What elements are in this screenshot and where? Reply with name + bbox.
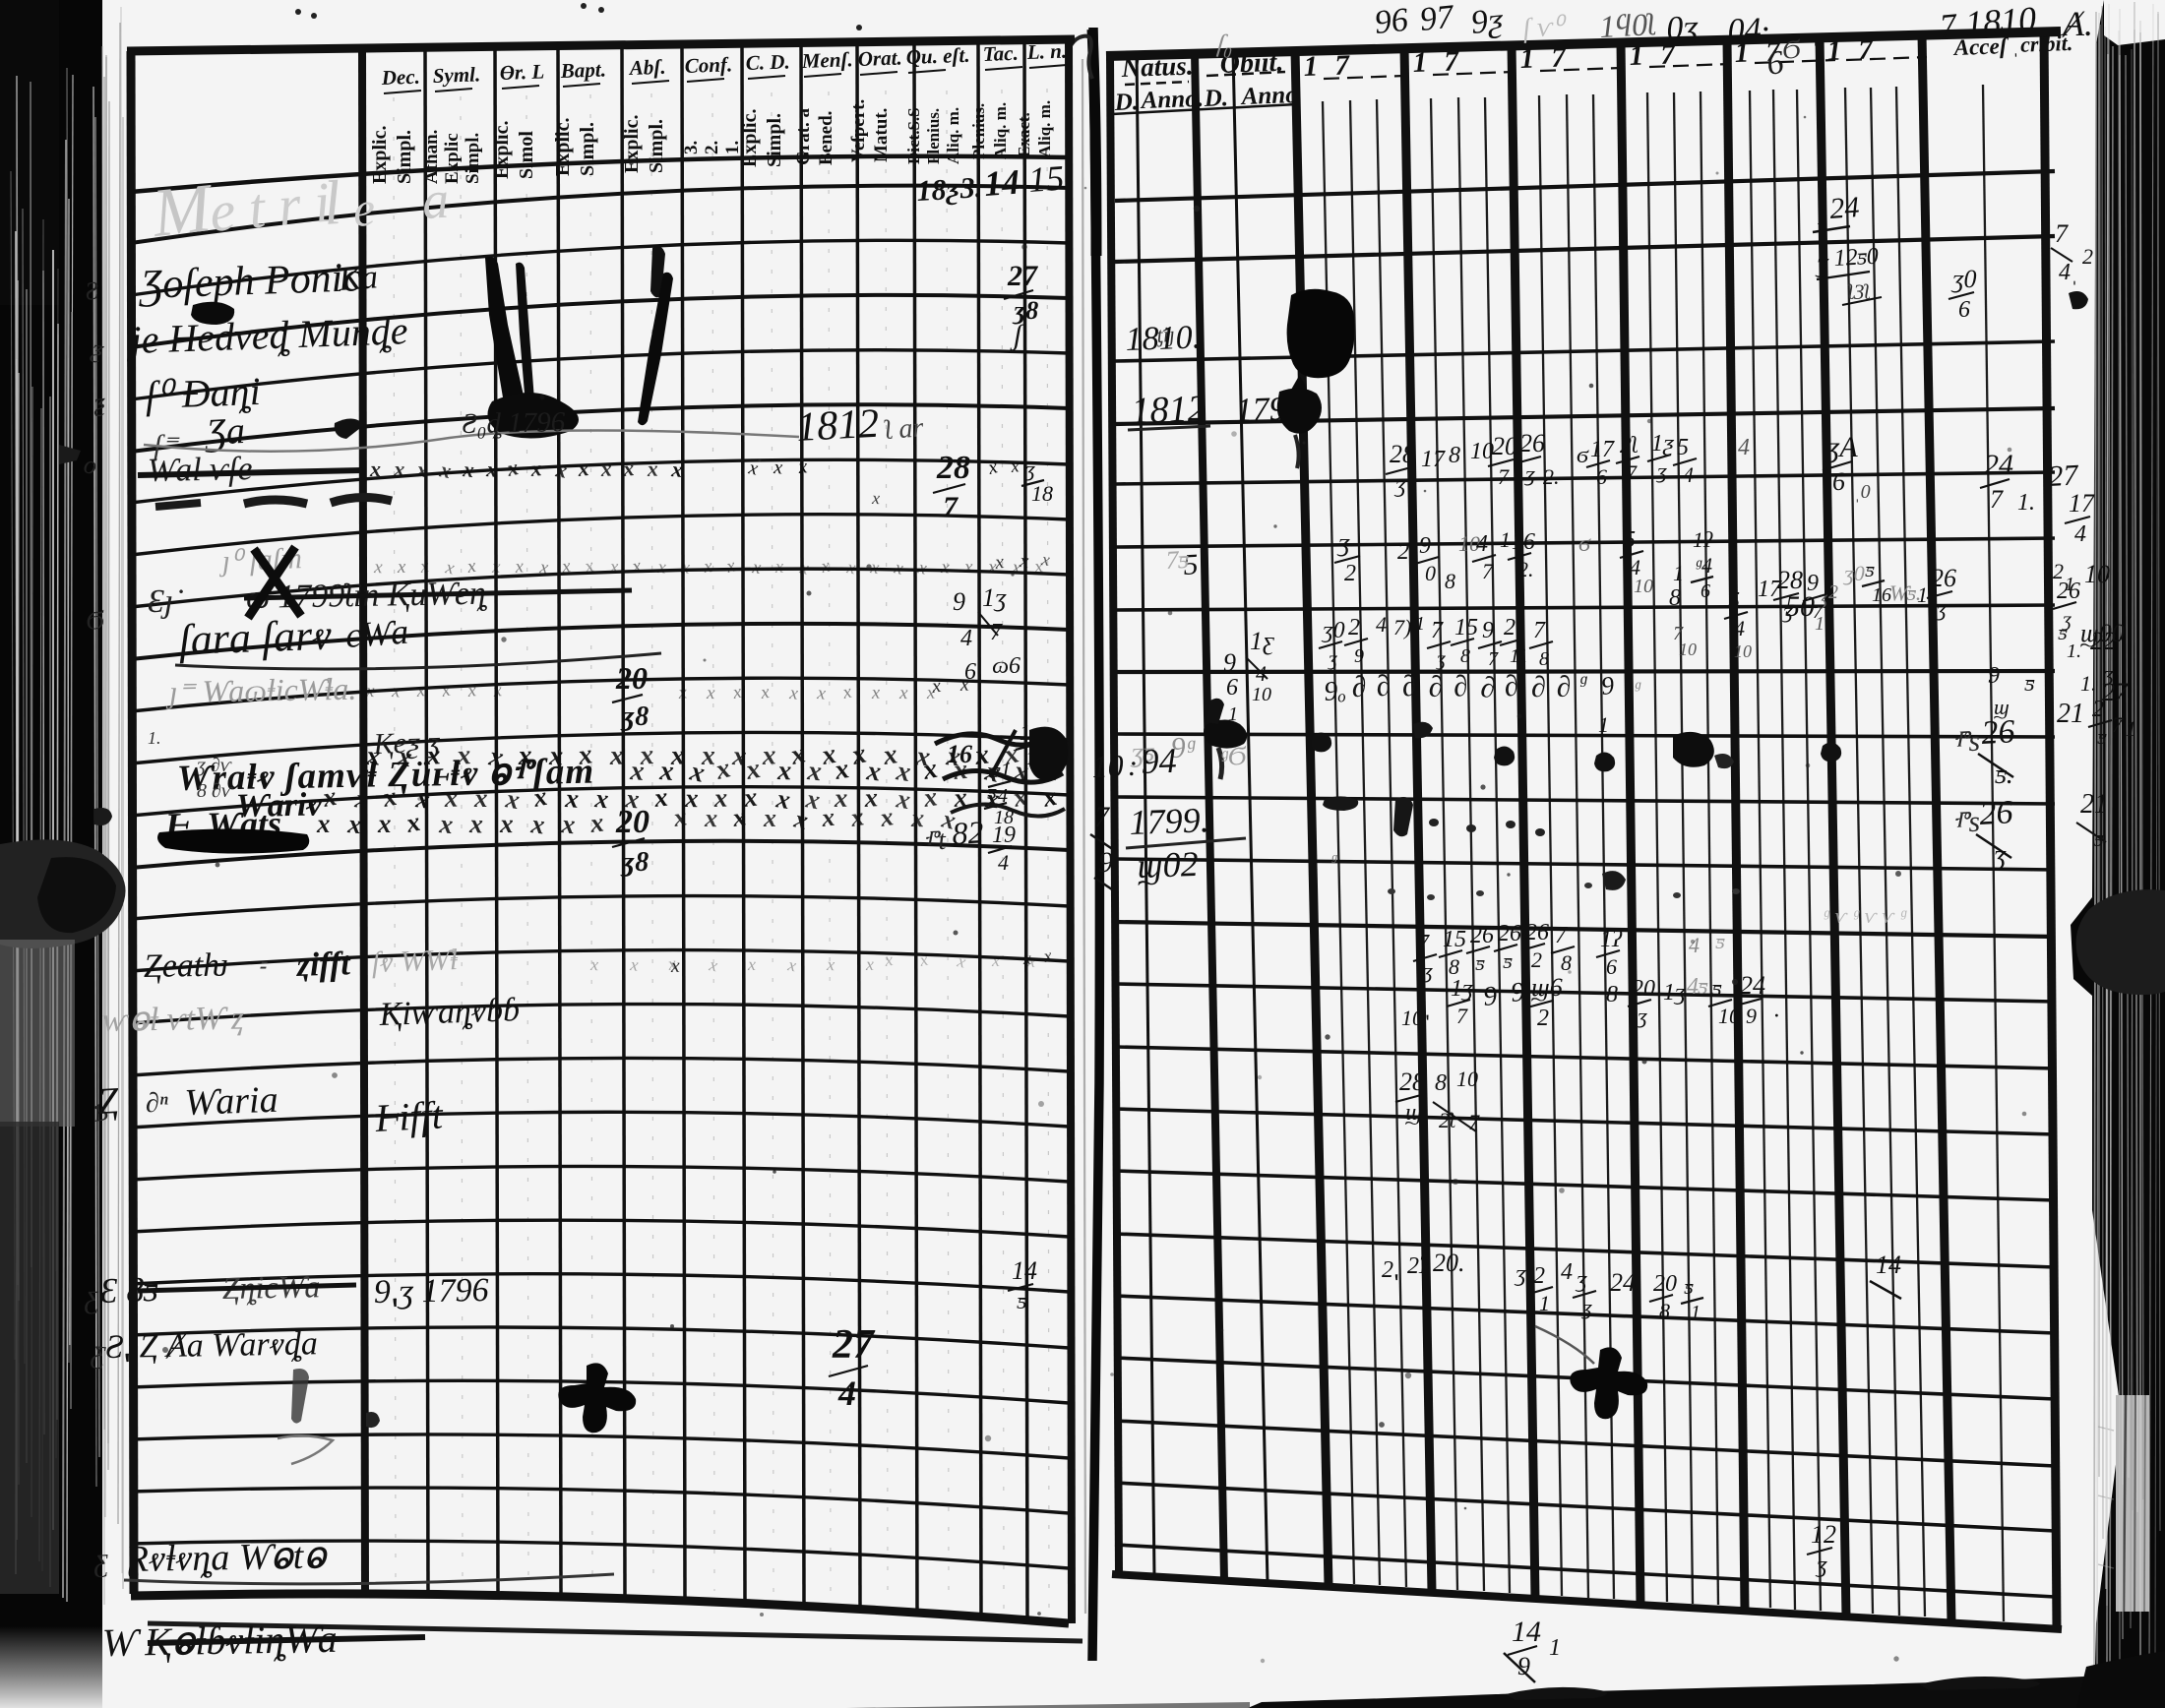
svg-text:7: 7 [990, 620, 1003, 645]
svg-text:1: 1 [1539, 1291, 1550, 1315]
svg-text:7ƽ: 7ƽ [1165, 545, 1190, 575]
svg-text:7: 7 [1488, 648, 1499, 670]
svg-text:Ⱬeatƕ: Ⱬeatƕ [143, 947, 228, 985]
svg-text:ƽ: ƽ [1711, 976, 1722, 1002]
svg-text:x: x [369, 457, 381, 481]
svg-text:ʒ0: ʒ0 [1321, 618, 1345, 643]
svg-text:x: x [468, 809, 484, 839]
svg-text:2: 2 [1828, 581, 1838, 603]
svg-text:1810.: 1810. [1125, 319, 1202, 358]
svg-text:10: 10 [1679, 640, 1697, 659]
svg-text:6: 6 [1958, 297, 1970, 323]
svg-text:16: 16 [1872, 584, 1891, 606]
svg-text:x: x [963, 557, 973, 578]
svg-text:2: 2 [2082, 244, 2093, 269]
svg-text:1.: 1. [2080, 671, 2097, 696]
svg-text:x: x [345, 809, 362, 839]
svg-text:82: 82 [951, 814, 984, 851]
svg-text:14: 14 [983, 162, 1021, 204]
svg-text:ƽ: ƽ [1865, 557, 1875, 581]
svg-text:x: x [608, 741, 624, 771]
svg-text:1: 1 [2126, 716, 2136, 741]
svg-text:4: 4 [1689, 933, 1700, 957]
svg-text:ᶢ ⱱ ᶢ ⱱ ⱱ ᶢ: ᶢ ⱱ ᶢ ⱱ ⱱ ᶢ [1823, 903, 1907, 928]
svg-text:26: 26 [2057, 579, 2080, 604]
svg-text:Simpl.: Simpl. [394, 130, 415, 184]
svg-text:12: 12 [1811, 1520, 1836, 1549]
svg-text:ƽ: ƽ [2024, 671, 2035, 697]
svg-text:ᶢ: ᶢ [1634, 675, 1641, 700]
svg-text:7: 7 [1533, 618, 1546, 643]
svg-text:9: 9 [1419, 533, 1431, 559]
svg-text:4ƽ: 4ƽ [1687, 974, 1708, 1000]
svg-text:16: 16 [947, 740, 972, 768]
svg-text:8: 8 [1669, 585, 1681, 611]
svg-text:2.: 2. [1517, 557, 1534, 581]
svg-text:Ʒoſeph Ponic: Ʒoſeph Ponic [138, 255, 362, 308]
svg-text:ʒ: ʒ [1393, 472, 1406, 498]
svg-text:4: 4 [1561, 1259, 1573, 1285]
svg-text:17: 17 [2069, 489, 2095, 518]
svg-text:9: 9 [1988, 663, 2000, 689]
svg-text:Simpl.: Simpl. [463, 133, 483, 184]
svg-text:ƽ: ƽ [987, 779, 997, 804]
svg-text:1ϥ0ʅ: 1ϥ0ʅ [1598, 6, 1655, 44]
svg-text:ʒ: ʒ [1523, 461, 1535, 486]
svg-text:Ƨ₀ȡ 1796: Ƨ₀ȡ 1796 [463, 406, 566, 440]
svg-text:2.: 2. [1543, 464, 1560, 489]
svg-text:ϣ: ϣ [1405, 1100, 1422, 1126]
svg-text:x: x [646, 457, 658, 481]
svg-text:Matut.: Matut. [871, 108, 892, 162]
svg-text:D.: D. [1113, 89, 1139, 116]
svg-text:ϭ: ϭ [1577, 443, 1589, 468]
svg-text:0: 0 [1425, 561, 1436, 585]
svg-text:21: 21 [2057, 699, 2084, 729]
svg-text:ʒ: ʒ [1815, 248, 1829, 278]
svg-text:Anno: Anno [1239, 82, 1298, 110]
svg-text:1.: 1. [2017, 490, 2035, 516]
svg-text:D.: D. [1203, 85, 1228, 112]
svg-text:1ʒ: 1ʒ [1451, 976, 1473, 1002]
svg-text:10: 10 [1091, 748, 1124, 784]
svg-text:4: 4 [1476, 531, 1488, 557]
svg-text:6: 6 [1832, 467, 1845, 496]
svg-text:Simpl.: Simpl. [764, 113, 785, 167]
svg-text:8: 8 [1445, 569, 1455, 593]
svg-text:4: 4 [1256, 661, 1267, 686]
svg-text:ϭ: ϭ [1578, 531, 1591, 557]
svg-text:9: 9 [1510, 977, 1526, 1008]
svg-text:28: 28 [1390, 440, 1415, 468]
svg-text:x: x [621, 456, 635, 481]
svg-text:Menſ.: Menſ. [800, 47, 853, 73]
svg-text:ʒ: ʒ [1421, 958, 1433, 983]
svg-text:ʒ: ʒ [1815, 1553, 1827, 1578]
svg-text:20: 20 [1653, 1271, 1677, 1297]
svg-text:10: 10 [1470, 439, 1494, 464]
svg-text:x: x [491, 557, 501, 578]
svg-text:ſ ⱱ⁰: ſ ⱱ⁰ [1521, 11, 1568, 44]
svg-text:1: 1 [1549, 1635, 1561, 1661]
svg-text:x: x [684, 783, 699, 813]
svg-text:x: x [437, 809, 454, 839]
svg-text:Explic.: Explic. [491, 121, 513, 179]
svg-text:20: 20 [1632, 976, 1655, 1002]
svg-text:ƽ: ƽ [1715, 929, 1725, 953]
svg-text:ʒA: ʒA [1825, 431, 1858, 463]
svg-text:Grat. a: Grat. a [793, 107, 814, 165]
svg-text:Explic.: Explic. [369, 126, 391, 184]
svg-text:97: 97 [1418, 0, 1457, 38]
svg-text:ⱂs: ⱂs [1951, 725, 1981, 759]
svg-text:ʒ: ʒ [1636, 1004, 1647, 1028]
svg-text:27: 27 [1007, 260, 1038, 292]
svg-text:5: 5 [1677, 435, 1689, 460]
svg-text:Abſ.: Abſ. [627, 55, 666, 80]
svg-text:10: 10 [1718, 1004, 1740, 1028]
svg-text:1 7: 1 7 [1303, 49, 1354, 83]
svg-text:20.: 20. [1433, 1249, 1465, 1277]
svg-text:Dict.S.S: Dict.S.S [904, 107, 923, 164]
svg-text:7: 7 [1990, 485, 2004, 514]
svg-text:Ka: Ka [337, 259, 379, 298]
svg-text:18: 18 [916, 173, 948, 208]
svg-text:Ʒa: Ʒa [203, 410, 246, 454]
svg-text:x: x [365, 681, 375, 701]
svg-text:Plenius.: Plenius. [924, 108, 943, 164]
svg-text:x: x [940, 557, 951, 579]
svg-text:2: 2 [1533, 1263, 1545, 1289]
svg-text:a: a [420, 170, 450, 230]
svg-text:7: 7 [1482, 559, 1494, 583]
svg-text:1: 1 [1673, 561, 1684, 585]
svg-text:L. n.: L. n. [1025, 39, 1067, 64]
svg-text:ƺ3.: ƺ3. [945, 171, 983, 206]
svg-text:26: 26 [1498, 921, 1521, 946]
svg-text:1: 1 [1691, 1302, 1701, 1323]
svg-text:x: x [1019, 550, 1029, 573]
svg-text:Aliq. m.: Aliq. m. [1035, 100, 1054, 157]
svg-text:9⹁ʒ 1796: 9⹁ʒ 1796 [373, 1272, 488, 1311]
svg-text:5: 5 [1624, 527, 1636, 553]
svg-text:1ʔ: 1ʔ [1600, 927, 1623, 952]
svg-text:28: 28 [1399, 1067, 1425, 1096]
svg-text:6: 6 [1226, 675, 1238, 701]
svg-text:·: · [1773, 1004, 1779, 1029]
svg-text:Ⱶifft: Ⱶifft [373, 1092, 445, 1140]
svg-text:17: 17 [1590, 437, 1615, 462]
svg-text:ƽ: ƽ [1503, 948, 1513, 973]
svg-text:2: 2 [1348, 615, 1360, 640]
svg-text:Simol: Simol [516, 131, 537, 179]
svg-text:ƽ: ƽ [1017, 1289, 1027, 1314]
svg-text:8: 8 [1606, 982, 1618, 1007]
svg-text:Syml.: Syml. [432, 62, 480, 88]
svg-text:4: 4 [1738, 435, 1750, 460]
svg-text:x: x [377, 809, 392, 838]
svg-text:24: 24 [1610, 1268, 1636, 1297]
svg-text:7: 7 [1498, 464, 1510, 489]
svg-text:⹁: ⹁ [1634, 1267, 1639, 1292]
svg-text:ʒ: ʒ [1655, 458, 1667, 483]
svg-text:26: 26 [1519, 429, 1545, 457]
svg-text:8: 8 [1435, 1070, 1447, 1096]
svg-text:Ⱥ.: Ⱥ. [2061, 4, 2093, 43]
svg-text:Tac.: Tac. [982, 41, 1019, 66]
svg-text:1: 1 [1817, 202, 1829, 230]
svg-text:ϣ6: ϣ6 [1531, 973, 1563, 1002]
svg-text:∂: ∂ [1480, 671, 1497, 704]
svg-text:ȷ⁼ ⱲaɷⱡicⱲⱡa.: ȷ⁼ ⱲaɷⱡicⱲⱡa. [164, 671, 356, 709]
svg-text:6: 6 [1606, 954, 1617, 979]
svg-text:12ƽ0: 12ƽ0 [1833, 244, 1880, 272]
svg-text:x: x [863, 782, 879, 813]
svg-text:ƽ: ƽ [1684, 1274, 1694, 1299]
svg-text:ᶢ4: ᶢ4 [1695, 553, 1712, 578]
svg-text:∂: ∂ [1531, 671, 1546, 703]
svg-text:Plenius.: Plenius. [969, 103, 988, 159]
svg-text:x: x [316, 809, 331, 838]
svg-text:0ʒ: 0ʒ [1665, 9, 1700, 47]
svg-text:x: x [704, 804, 718, 832]
svg-text:cⱲa: cⱲa [344, 612, 410, 655]
svg-text:1799.: 1799. [1129, 800, 1209, 842]
svg-text:x: x [761, 740, 777, 771]
svg-text:2: 2 [1537, 1006, 1549, 1031]
svg-text:20: 20 [615, 804, 649, 840]
svg-text:2: 2 [1531, 947, 1542, 972]
svg-text:1.: 1. [2067, 640, 2081, 662]
svg-text:9: 9 [1223, 648, 1236, 677]
svg-text:x: x [773, 557, 784, 578]
svg-text:21: 21 [2080, 789, 2108, 820]
svg-text:27: 27 [2048, 458, 2081, 493]
svg-text:Ɵr. L: Ɵr. L [499, 59, 544, 85]
svg-text:2: 2 [1344, 561, 1356, 586]
svg-text:x: x [670, 955, 681, 977]
svg-text:8 ∂ⱱ: 8 ∂ⱱ [197, 780, 233, 802]
svg-text:x: x [656, 557, 667, 579]
svg-text:26: 26 [1931, 564, 1956, 592]
svg-text:24: 24 [1828, 191, 1860, 225]
svg-text:ƽ.: ƽ. [1995, 760, 2013, 790]
svg-text:1: 1 [1415, 613, 1425, 635]
svg-text:14: 14 [1876, 1250, 1901, 1279]
svg-text:2.: 2. [702, 141, 722, 154]
svg-text:ᶢ: ᶢ [1330, 849, 1337, 871]
svg-text:ʅ ar: ʅ ar [883, 412, 924, 446]
svg-text:1ʒ: 1ʒ [982, 583, 1007, 612]
svg-text:Qu. eſt.: Qu. eſt. [905, 43, 970, 69]
svg-text:x: x [773, 457, 783, 479]
svg-text::: : [1128, 750, 1138, 782]
svg-text:7: 7 [1417, 931, 1430, 956]
svg-text:∂: ∂ [1556, 670, 1572, 703]
svg-text:7: 7 [1456, 1004, 1468, 1028]
svg-text:ʒ: ʒ [1935, 596, 1947, 621]
svg-text:9: 9 [1098, 846, 1113, 879]
svg-text:15: 15 [1443, 927, 1466, 952]
svg-text:x: x [670, 457, 684, 482]
svg-text:04·: 04· [1727, 12, 1770, 49]
svg-text:x: x [414, 457, 428, 482]
svg-text:28: 28 [1777, 566, 1803, 594]
svg-text:x: x [870, 683, 881, 703]
svg-text:24: 24 [1984, 449, 2013, 481]
svg-text:10: 10 [1734, 641, 1752, 661]
svg-text:8: 8 [1449, 443, 1460, 468]
svg-text:x: x [805, 756, 823, 787]
svg-text:2: 2 [1504, 615, 1515, 640]
svg-text:9: 9 [1482, 981, 1499, 1012]
svg-text:Veſpert.: Veſpert. [848, 99, 869, 162]
svg-text:x: x [528, 456, 542, 481]
svg-text:4: 4 [998, 850, 1009, 875]
svg-text:x: x [589, 954, 599, 974]
svg-text:2: 2 [2092, 697, 2104, 722]
svg-text:ˌ0: ˌ0 [1854, 481, 1871, 503]
svg-text:4: 4 [1376, 612, 1387, 637]
svg-text:ʒ: ʒ [1992, 840, 2007, 871]
svg-text:1: 1 [1309, 850, 1320, 875]
svg-text:Exact.: Exact. [1015, 112, 1033, 157]
svg-text:9: 9 [1354, 645, 1364, 667]
svg-text:x: x [865, 954, 874, 974]
svg-text:⹁: ⹁ [1425, 1001, 1430, 1022]
svg-text:7: 7 [2055, 219, 2069, 248]
svg-text:x: x [559, 809, 576, 839]
svg-text:ᶢϬ: ᶢϬ [1219, 742, 1248, 771]
svg-text:ſ₀: ſ₀ [1215, 29, 1234, 59]
svg-text:5: 5 [1728, 588, 1740, 614]
svg-text:x: x [898, 683, 908, 703]
svg-text:Explic.: Explic. [552, 118, 574, 176]
svg-text:7: 7 [943, 491, 959, 523]
svg-text:ʒ: ʒ [1575, 1267, 1587, 1293]
svg-text:4: 4 [1734, 616, 1745, 640]
svg-text:7: 7 [1094, 801, 1111, 833]
svg-text:19: 19 [992, 823, 1016, 848]
svg-text:2⹁: 2⹁ [1382, 1257, 1399, 1283]
svg-text:9: 9 [1746, 1004, 1757, 1028]
svg-text:24: 24 [1740, 971, 1765, 1000]
svg-text:∂ⁿ: ∂ⁿ [146, 1088, 168, 1119]
svg-text:ʒ0: ʒ0 [1842, 561, 1865, 585]
svg-text:Explic.: Explic. [739, 109, 761, 167]
svg-text:x: x [834, 783, 848, 813]
svg-text:3.: 3. [681, 141, 702, 154]
svg-text:ᶢ: ᶢ [1578, 668, 1587, 697]
svg-text:e: e [351, 181, 377, 237]
svg-text:ⱂt: ⱂt [922, 825, 948, 857]
svg-text:x: x [499, 809, 514, 838]
svg-text:10: 10 [1401, 1006, 1423, 1030]
svg-text:Ⱬ: Ⱬ [96, 1080, 120, 1123]
svg-text:7: 7 [1431, 618, 1444, 643]
svg-text:Bened.: Bened. [816, 111, 836, 165]
svg-text:x: x [776, 756, 792, 786]
svg-text:x: x [373, 557, 384, 578]
svg-text:26: 26 [1980, 713, 2015, 752]
svg-text:Simpl.: Simpl. [577, 122, 598, 176]
svg-text:Aliq. m.: Aliq. m. [944, 107, 962, 164]
svg-text:ʒ8: ʒ8 [620, 847, 649, 878]
svg-text:10: 10 [2084, 560, 2110, 588]
svg-text:8: 8 [1460, 645, 1470, 667]
svg-text:x: x [1021, 948, 1031, 968]
svg-text:4: 4 [960, 626, 972, 651]
svg-text:∂: ∂ [1351, 671, 1367, 703]
svg-text:1812: 1812 [795, 401, 880, 451]
svg-text:27: 27 [2102, 678, 2129, 706]
svg-text:1ƺ: 1ƺ [1651, 431, 1675, 457]
svg-text:ʒ: ʒ [1327, 648, 1337, 670]
svg-text:1 7: 1 7 [1826, 33, 1878, 67]
svg-text:x: x [609, 557, 619, 578]
svg-text:Dec.: Dec. [380, 65, 420, 90]
svg-text:Simpl.: Simpl. [646, 119, 667, 173]
svg-text:20: 20 [615, 660, 648, 696]
svg-text:Bapt.: Bapt. [559, 57, 606, 83]
svg-text:8: 8 [1539, 648, 1549, 670]
svg-text:ⱬifft: ⱬifft [295, 945, 352, 984]
svg-text:ʒ0: ʒ0 [1950, 265, 1977, 293]
svg-text:ʒ: ʒ [1580, 1295, 1592, 1319]
svg-text:x: x [599, 457, 612, 482]
svg-text:ɷ6: ɷ6 [992, 653, 1021, 679]
svg-text:7: 7 [2112, 712, 2124, 737]
svg-text:28: 28 [936, 450, 970, 486]
svg-text:6: 6 [1701, 580, 1710, 602]
svg-text:x: x [391, 681, 402, 702]
svg-text:16: 16 [1512, 529, 1535, 555]
svg-text:17: 17 [1421, 447, 1446, 472]
svg-text:ⱳⱺⱡ ⱱtⱲ ⱬ: ⱳⱺⱡ ⱱtⱲ ⱬ [101, 1000, 244, 1039]
svg-text:94: 94 [1141, 741, 1177, 781]
svg-text:ˌ: ˌ [1811, 14, 1821, 46]
svg-text:26: 26 [1470, 923, 1494, 948]
svg-text:18: 18 [1031, 481, 1053, 506]
svg-text:7): 7) [1393, 615, 1411, 640]
svg-text:ʒ: ʒ [1435, 648, 1446, 670]
svg-text:ʒ8: ʒ8 [620, 701, 649, 732]
svg-text:2ʔ: 2ʔ [1407, 1253, 1430, 1279]
svg-text:4: 4 [1683, 462, 1694, 487]
svg-text:96: 96 [1373, 2, 1410, 41]
svg-text:27: 27 [832, 1322, 876, 1368]
svg-text:8: 8 [1659, 1299, 1670, 1323]
svg-text:ƽ: ƽ [2097, 724, 2107, 749]
svg-text:10: 10 [1252, 684, 1271, 705]
svg-text:Natus.: Natus. [1120, 50, 1194, 83]
svg-text:x: x [991, 950, 1000, 970]
svg-text:x: x [443, 783, 459, 813]
svg-text:C. D.: C. D. [745, 49, 790, 75]
svg-text:9: 9 [953, 587, 965, 616]
svg-text:9ₒ: 9ₒ [1323, 676, 1346, 707]
svg-text:7: 7 [1555, 923, 1568, 948]
svg-text:1 7: 1 7 [1519, 41, 1571, 75]
svg-text:15: 15 [1027, 158, 1066, 200]
svg-text:Ƨ⹁ Ⱬ Ⱥa Ⱳarⱴȡa: Ƨ⹁ Ⱬ Ⱥa Ⱳarⱴȡa [105, 1325, 318, 1366]
svg-text:1 7: 1 7 [1412, 45, 1463, 79]
svg-text:x: x [576, 456, 589, 481]
svg-text:ʒ: ʒ [1336, 528, 1350, 557]
svg-text:x: x [485, 457, 499, 482]
svg-text:4: 4 [2074, 521, 2086, 547]
svg-text:14: 14 [1012, 1256, 1037, 1285]
